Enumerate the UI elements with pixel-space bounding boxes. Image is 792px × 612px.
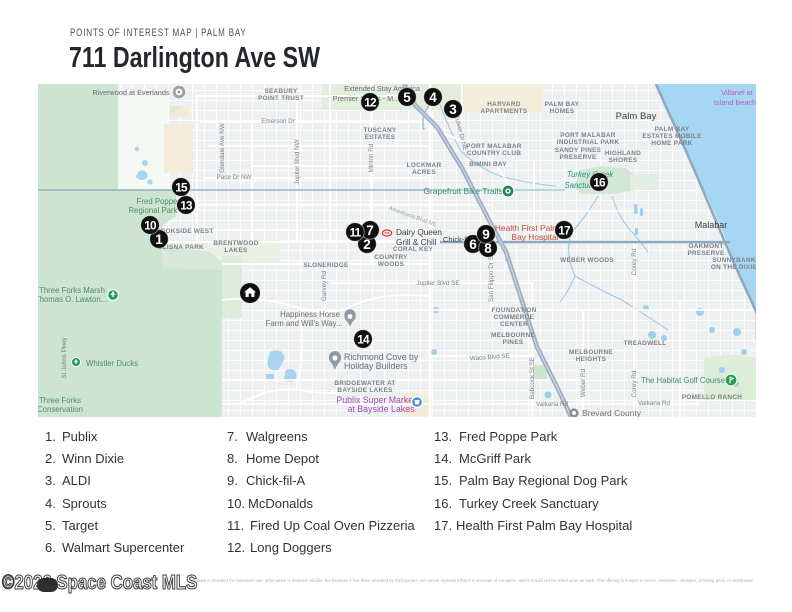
- svg-text:Fred Poppe: Fred Poppe: [137, 197, 178, 206]
- svg-text:Weber Rd: Weber Rd: [580, 368, 587, 397]
- svg-text:Whistler Ducks: Whistler Ducks: [86, 359, 138, 368]
- svg-text:Brevard County: Brevard County: [582, 408, 642, 417]
- svg-text:Jupiter Blvd NW: Jupiter Blvd NW: [294, 139, 301, 184]
- svg-text:Emerson Dr: Emerson Dr: [261, 118, 295, 125]
- svg-text:10: 10: [144, 219, 157, 233]
- svg-text:4: 4: [429, 90, 437, 105]
- svg-text:HEIGHTS: HEIGHTS: [576, 356, 607, 363]
- svg-text:Villanel at: Villanel at: [721, 88, 753, 97]
- svg-text:Thomas O. Lawton...: Thomas O. Lawton...: [38, 295, 107, 304]
- svg-text:PALM BAY: PALM BAY: [655, 126, 690, 133]
- svg-text:Valkaria Rd: Valkaria Rd: [536, 401, 569, 408]
- svg-text:Dairy Queen: Dairy Queen: [396, 228, 442, 237]
- svg-text:Holiday Builders: Holiday Builders: [344, 361, 408, 371]
- svg-text:CORAL KEY: CORAL KEY: [393, 246, 434, 253]
- svg-text:PRESERVE: PRESERVE: [687, 250, 725, 257]
- svg-text:CENTER: CENTER: [500, 321, 528, 328]
- svg-text:Conservation: Conservation: [38, 405, 83, 414]
- svg-text:Corey Rd: Corey Rd: [631, 370, 638, 397]
- svg-text:Island Beach: Island Beach: [714, 98, 756, 107]
- svg-text:SLONERIDGE: SLONERIDGE: [303, 262, 349, 269]
- svg-text:MELBOURNE: MELBOURNE: [569, 349, 613, 356]
- svg-text:San Filippo Dr SE: San Filippo Dr SE: [488, 252, 495, 302]
- svg-text:Glendale Ave NW: Glendale Ave NW: [219, 123, 226, 173]
- svg-text:HOME PARK: HOME PARK: [651, 140, 692, 147]
- svg-text:Farm and Will's Way...: Farm and Will's Way...: [266, 319, 343, 328]
- svg-text:OAKMONT: OAKMONT: [688, 243, 723, 250]
- svg-text:at Bayside Lakes: at Bayside Lakes: [348, 404, 416, 414]
- svg-text:3: 3: [449, 102, 457, 117]
- svg-text:17: 17: [558, 224, 571, 238]
- svg-text:1: 1: [155, 232, 163, 247]
- svg-text:SEABURY: SEABURY: [264, 88, 298, 95]
- svg-text:SHORES: SHORES: [609, 157, 638, 164]
- svg-text:15: 15: [175, 181, 188, 195]
- svg-text:Happiness Horse: Happiness Horse: [280, 310, 340, 319]
- svg-text:PALM BAY: PALM BAY: [545, 101, 580, 108]
- svg-text:LOCKMAR: LOCKMAR: [407, 162, 442, 169]
- svg-text:Jupiter Blvd SE: Jupiter Blvd SE: [416, 280, 459, 287]
- svg-text:WEBER WOODS: WEBER WOODS: [560, 257, 614, 264]
- svg-text:16: 16: [593, 176, 606, 190]
- svg-text:Three Forks Marsh: Three Forks Marsh: [39, 286, 105, 295]
- svg-text:Minton Rd: Minton Rd: [368, 143, 375, 172]
- svg-text:Bay Hospital: Bay Hospital: [511, 232, 558, 242]
- svg-text:ESTATES MOBILE: ESTATES MOBILE: [642, 133, 702, 140]
- svg-text:6: 6: [469, 237, 477, 252]
- svg-text:POINT TRUST: POINT TRUST: [258, 95, 304, 102]
- svg-text:Grapefruit Bike Trails: Grapefruit Bike Trails: [423, 186, 502, 196]
- svg-text:INDUSTRIAL PARK: INDUSTRIAL PARK: [557, 139, 620, 146]
- svg-text:PORT MALABAR: PORT MALABAR: [466, 143, 522, 150]
- svg-text:ACRES: ACRES: [412, 169, 436, 176]
- svg-text:SUNNYBANK: SUNNYBANK: [712, 257, 756, 264]
- svg-text:Regional Park: Regional Park: [129, 206, 178, 215]
- svg-text:Corey Rd: Corey Rd: [631, 248, 638, 275]
- svg-text:12: 12: [364, 96, 377, 110]
- svg-text:13: 13: [180, 199, 193, 213]
- svg-text:POMELLO RANCH: POMELLO RANCH: [682, 394, 742, 401]
- svg-text:Valkaria Rd: Valkaria Rd: [638, 400, 671, 407]
- svg-text:HIGHLAND: HIGHLAND: [605, 150, 641, 157]
- svg-text:Grill & Chill: Grill & Chill: [396, 238, 437, 247]
- svg-text:BRIDGEWATER AT: BRIDGEWATER AT: [334, 380, 395, 387]
- svg-text:PORT MALABAR: PORT MALABAR: [560, 132, 616, 139]
- svg-text:FOUNDATION: FOUNDATION: [491, 307, 536, 314]
- svg-text:BRENTWOOD: BRENTWOOD: [213, 240, 258, 247]
- svg-text:MELBOURNE: MELBOURNE: [491, 332, 535, 339]
- svg-text:Three Forks: Three Forks: [39, 396, 81, 405]
- svg-text:5: 5: [403, 90, 411, 105]
- svg-text:TUSCANY: TUSCANY: [364, 127, 397, 134]
- svg-text:SANDY PINES: SANDY PINES: [555, 147, 602, 154]
- svg-text:14: 14: [357, 333, 370, 347]
- svg-text:LAKES: LAKES: [224, 247, 248, 254]
- svg-text:Malabar: Malabar: [695, 220, 728, 230]
- svg-text:WOODS: WOODS: [378, 261, 405, 268]
- svg-text:BIMINI BAY: BIMINI BAY: [469, 161, 507, 168]
- svg-text:ON THE DIXIE: ON THE DIXIE: [711, 264, 756, 271]
- svg-text:HOMES: HOMES: [550, 108, 575, 115]
- svg-text:Babcock St SE: Babcock St SE: [529, 357, 536, 399]
- svg-text:7: 7: [366, 223, 374, 238]
- svg-text:COUNTRY CLUB: COUNTRY CLUB: [467, 150, 521, 157]
- svg-text:PRESERVE: PRESERVE: [559, 154, 597, 161]
- svg-text:HARVARD: HARVARD: [487, 101, 521, 108]
- svg-text:COUNTRY: COUNTRY: [374, 254, 408, 261]
- svg-text:TREADWELL: TREADWELL: [624, 340, 667, 347]
- svg-text:St Johns Pkwy: St Johns Pkwy: [61, 337, 68, 379]
- svg-text:The Habitat Golf Course: The Habitat Golf Course: [641, 376, 725, 385]
- svg-text:Riverwood at Everlands: Riverwood at Everlands: [92, 88, 169, 97]
- svg-text:APARTMENTS: APARTMENTS: [481, 108, 528, 115]
- svg-text:Garvey Rd: Garvey Rd: [321, 270, 328, 301]
- svg-text:BAYSIDE LAKES: BAYSIDE LAKES: [337, 387, 393, 394]
- svg-text:9: 9: [482, 227, 490, 242]
- svg-text:COMMERCE: COMMERCE: [494, 314, 535, 321]
- svg-text:PINES: PINES: [503, 339, 524, 346]
- svg-text:Palm Bay: Palm Bay: [616, 111, 657, 122]
- svg-text:11: 11: [350, 226, 362, 240]
- svg-text:Pace Dr NW: Pace Dr NW: [217, 174, 252, 181]
- svg-text:ESTATES: ESTATES: [365, 134, 396, 141]
